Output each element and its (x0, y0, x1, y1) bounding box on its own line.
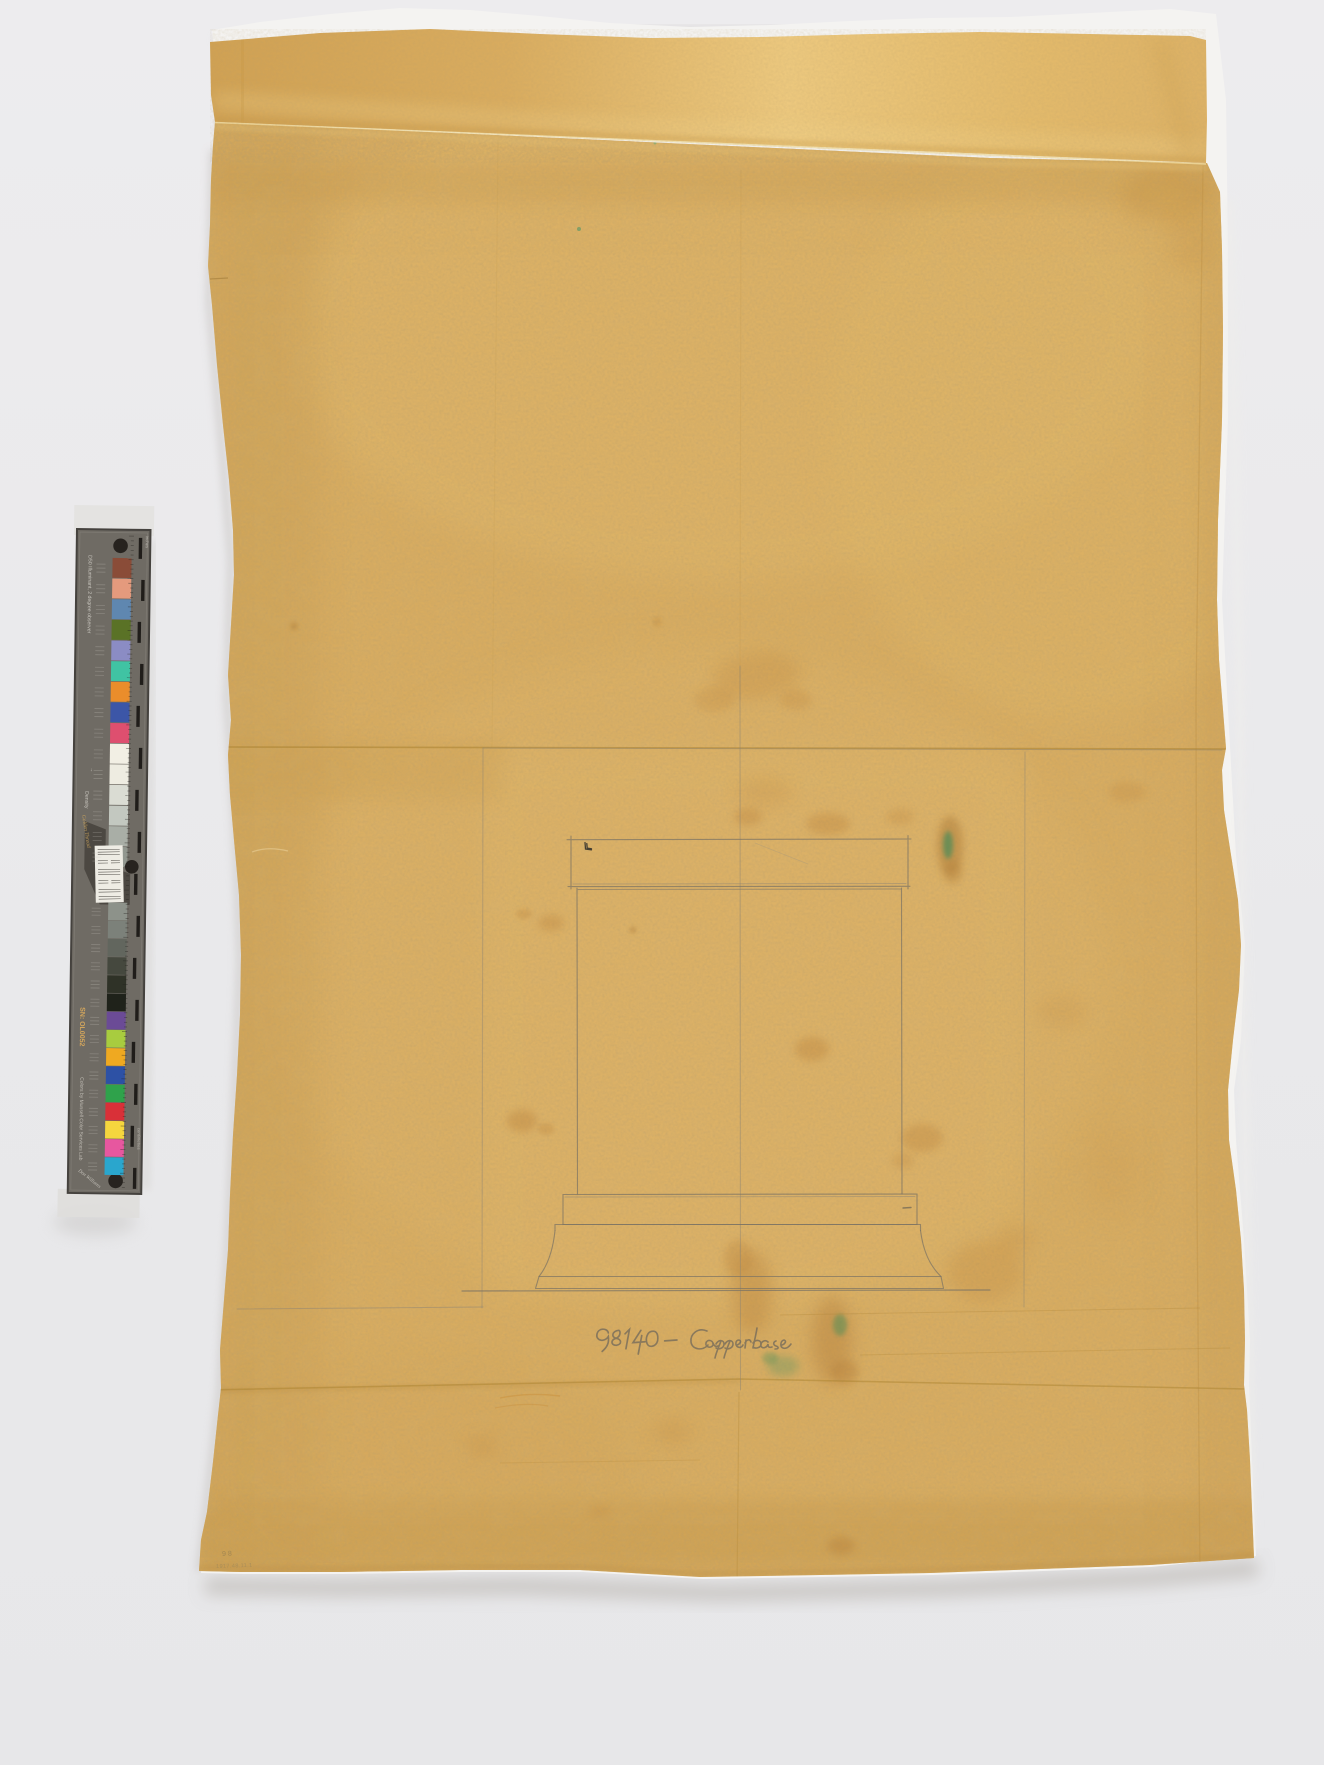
svg-text:SN: OL0052: SN: OL0052 (78, 1007, 86, 1046)
svg-text:9 8: 9 8 (222, 1551, 232, 1558)
svg-text:D50 Illuminant, 2 degree obser: D50 Illuminant, 2 degree observer (86, 555, 93, 633)
svg-text:inches: inches (145, 536, 150, 548)
svg-text:1917.48.11.1: 1917.48.11.1 (216, 1563, 253, 1570)
svg-text:→: → (89, 767, 95, 772)
svg-text:centimetres: centimetres (136, 1128, 141, 1150)
svg-text:Density: Density (83, 791, 89, 809)
svg-text:Colors by Munsell Color Servic: Colors by Munsell Color Services Lab (77, 1077, 84, 1161)
